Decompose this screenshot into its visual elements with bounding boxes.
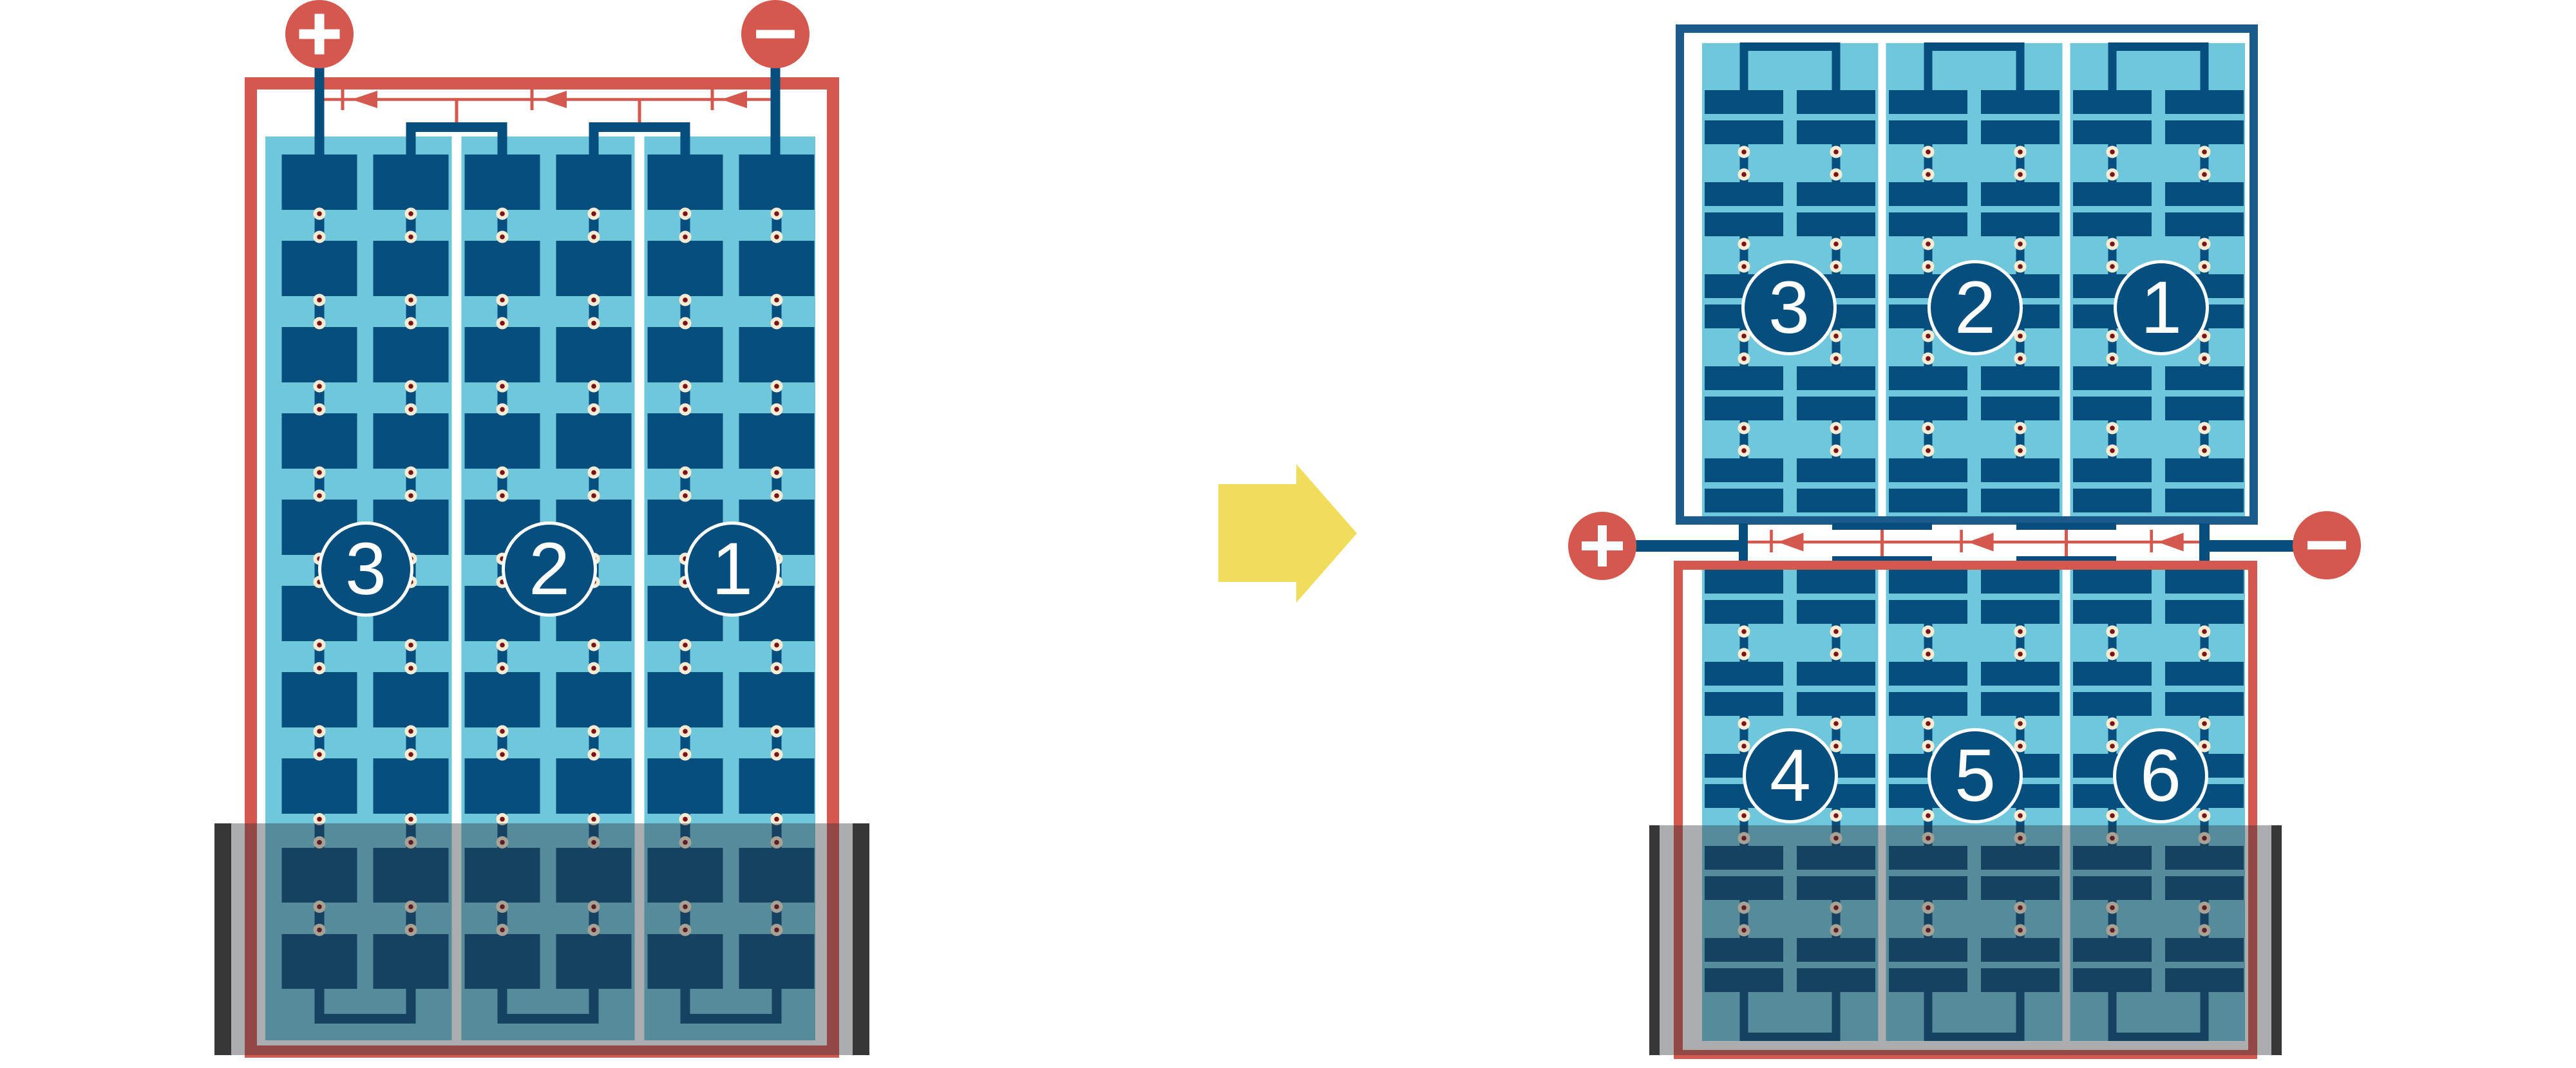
svg-text:5: 5 — [1955, 735, 1996, 817]
svg-text:3: 3 — [1768, 267, 1810, 349]
svg-text:4: 4 — [1770, 735, 1811, 817]
svg-text:1: 1 — [712, 528, 753, 610]
svg-text:3: 3 — [345, 528, 386, 610]
svg-text:6: 6 — [2140, 735, 2181, 817]
svg-text:2: 2 — [529, 528, 570, 610]
svg-text:1: 1 — [2141, 267, 2182, 349]
svg-text:2: 2 — [1955, 267, 1996, 349]
